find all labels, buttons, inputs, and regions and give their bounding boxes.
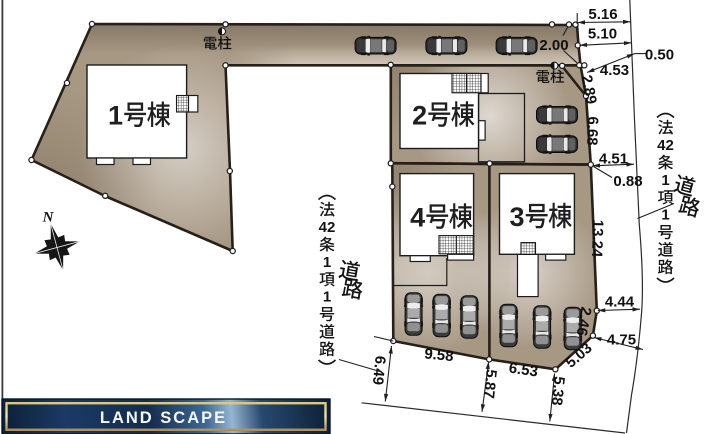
svg-text:3: 3 bbox=[510, 202, 525, 232]
svg-text:13.24: 13.24 bbox=[588, 219, 606, 258]
svg-text:9.58: 9.58 bbox=[424, 345, 455, 365]
svg-text:4.75: 4.75 bbox=[607, 331, 636, 348]
svg-text:6.49: 6.49 bbox=[369, 355, 389, 386]
svg-text:1: 1 bbox=[661, 207, 669, 224]
svg-text:42: 42 bbox=[319, 219, 336, 236]
svg-text:5.10: 5.10 bbox=[588, 25, 617, 42]
svg-text:4.44: 4.44 bbox=[605, 293, 635, 310]
svg-text:2: 2 bbox=[412, 100, 427, 130]
svg-text:1: 1 bbox=[108, 101, 123, 131]
svg-text:42: 42 bbox=[657, 137, 674, 154]
svg-text:4.51: 4.51 bbox=[599, 150, 628, 167]
svg-text:0.88: 0.88 bbox=[613, 173, 642, 190]
svg-text:5.87: 5.87 bbox=[480, 369, 500, 400]
svg-text:LAND SCAPE: LAND SCAPE bbox=[100, 409, 227, 427]
svg-text:4.53: 4.53 bbox=[600, 62, 629, 79]
svg-text:5.38: 5.38 bbox=[548, 376, 568, 407]
svg-text:5.16: 5.16 bbox=[588, 6, 617, 23]
svg-text:1: 1 bbox=[323, 254, 331, 271]
svg-text:4: 4 bbox=[410, 202, 425, 232]
svg-text:1: 1 bbox=[661, 172, 669, 189]
svg-text:0.50: 0.50 bbox=[645, 46, 674, 63]
svg-text:1: 1 bbox=[323, 289, 331, 306]
svg-text:6.68: 6.68 bbox=[583, 116, 601, 146]
svg-text:N: N bbox=[42, 210, 55, 226]
